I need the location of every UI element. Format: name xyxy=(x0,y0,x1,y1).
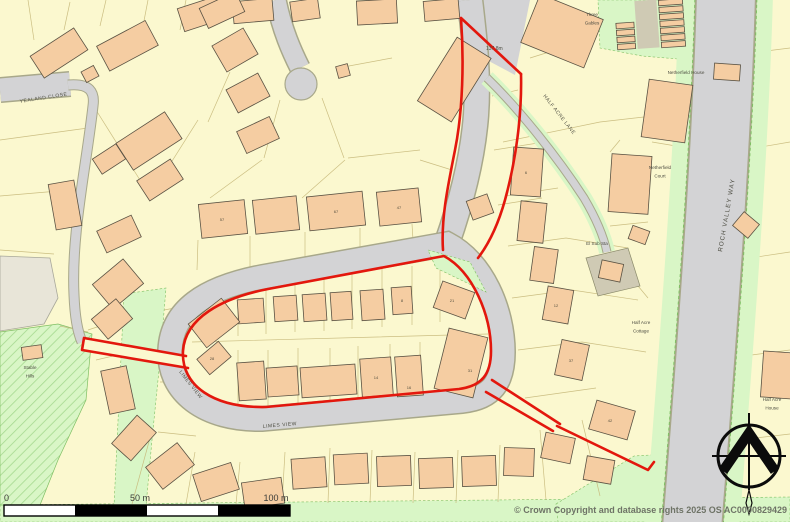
building xyxy=(530,246,558,283)
garage xyxy=(661,34,685,41)
building xyxy=(608,154,652,215)
plot-number: 14 xyxy=(374,375,379,380)
building xyxy=(360,289,385,321)
scale-label-end: 100 m xyxy=(263,493,288,503)
plot-number: 16 xyxy=(407,385,412,390)
building xyxy=(356,0,397,25)
building xyxy=(300,364,357,398)
garage xyxy=(616,22,634,29)
place-label-netherfield-house: Netherfield House xyxy=(668,70,705,75)
building xyxy=(273,295,298,322)
copyright-notice: © Crown Copyright and database rights 20… xyxy=(514,505,787,515)
building xyxy=(395,355,424,397)
building xyxy=(517,201,547,243)
garage xyxy=(617,43,635,50)
building xyxy=(336,64,351,79)
plot-number: 12 xyxy=(554,303,559,308)
plot-number: 28 xyxy=(210,356,215,361)
os-map-canvas: YEALAND CLOSE LIMES VIEW LIMES VIEW HALF… xyxy=(0,0,790,522)
scale-bar-segment xyxy=(218,505,290,516)
building xyxy=(641,79,693,143)
plot-number: 21 xyxy=(450,298,455,303)
garage-yard xyxy=(634,0,659,49)
building xyxy=(330,291,353,320)
building xyxy=(713,63,740,81)
building xyxy=(541,432,576,464)
plot-number: 31 xyxy=(468,368,473,373)
building xyxy=(290,0,321,22)
plot-number: 57 xyxy=(220,217,225,222)
garage xyxy=(616,29,634,36)
spot-height-label: 137.8m xyxy=(486,46,503,52)
garage xyxy=(661,41,685,48)
building xyxy=(760,351,790,399)
building xyxy=(21,345,43,361)
building xyxy=(583,456,615,484)
building xyxy=(418,457,453,488)
building xyxy=(237,361,267,401)
map-viewport: YEALAND CLOSE LIMES VIEW LIMES VIEW HALF… xyxy=(0,0,790,522)
building xyxy=(333,453,369,485)
building xyxy=(504,447,535,476)
building xyxy=(461,455,496,486)
plot-number: 67 xyxy=(334,209,339,214)
scale-label-zero: 0 xyxy=(4,493,9,503)
building xyxy=(302,293,327,322)
plot-number: 37 xyxy=(569,358,574,363)
garage xyxy=(660,20,684,27)
scale-bar-segment xyxy=(75,505,147,516)
garage xyxy=(660,27,684,34)
yealand-close-road xyxy=(0,84,70,90)
building xyxy=(252,196,299,234)
garage xyxy=(617,36,635,43)
cul-de-sac-bulb xyxy=(285,68,317,100)
plot-number: 42 xyxy=(608,418,613,423)
building xyxy=(237,298,265,324)
place-label-el-sub-sta: El Sub Sta xyxy=(586,241,608,246)
building xyxy=(291,457,327,489)
garage xyxy=(659,13,683,20)
garage xyxy=(659,6,683,13)
plot-number: 47 xyxy=(397,205,402,210)
building xyxy=(423,0,460,21)
building xyxy=(266,366,299,397)
scale-label-mid: 50 m xyxy=(130,493,150,503)
building xyxy=(376,455,411,486)
